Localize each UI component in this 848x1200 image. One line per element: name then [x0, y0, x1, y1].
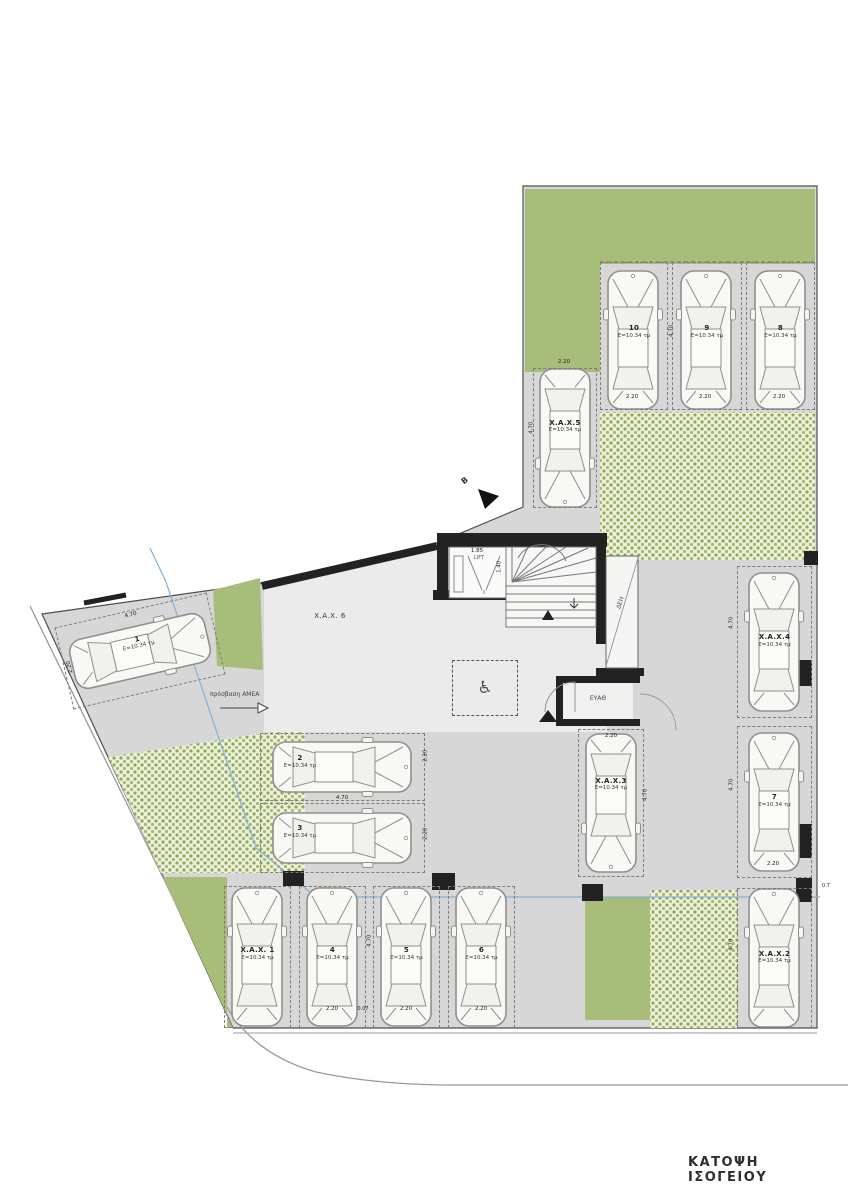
- dimension-label: 0.7: [812, 884, 840, 889]
- parking-space-xax1: X.A.X. 1 E=10.34 τμ: [224, 886, 291, 1028]
- space-area: E=10.34 τμ: [300, 955, 365, 962]
- stairs: [506, 545, 596, 627]
- access-label: πρόσβαση ΑΜΕΑ: [210, 692, 280, 698]
- dimension-label: 4.70: [367, 927, 373, 955]
- dimension-label: 4.70: [729, 609, 735, 637]
- space-number: 8: [747, 324, 814, 333]
- parking-space-xax5: X.A.X.5 E=10.34 τμ: [533, 368, 597, 508]
- dimension-label: 2.20: [765, 395, 793, 401]
- lift-label: LIFT: [466, 556, 492, 561]
- dimension-label: 4.70: [643, 781, 649, 809]
- dimension-label: 1.40: [497, 553, 503, 581]
- parking-space-8: 8 E=10.34 τμ: [746, 262, 815, 410]
- space-number: X.A.X.3: [579, 777, 643, 786]
- dimension-label: 2.20: [467, 1007, 495, 1013]
- garden-south-center: [585, 897, 650, 1020]
- dimension-label: 2.20: [318, 1007, 346, 1013]
- dimension-label: 2.20: [423, 742, 429, 770]
- paver-area-south: [650, 890, 738, 1028]
- parking-space-2: 2 E=10.34 τμ: [260, 733, 425, 801]
- page-title: ΚΑΤΟΨΗ ΙΣΟΓΕΙΟΥ: [688, 1155, 838, 1185]
- parking-space-xax3: X.A.X.3 E=10.34 τμ: [578, 729, 644, 877]
- dimension-label: 4.70: [117, 610, 146, 622]
- dimension-label: 4.70: [669, 317, 675, 345]
- parking-space-7: 7 E=10.34 τμ: [737, 726, 812, 878]
- space-number: 1: [61, 618, 213, 661]
- space-number: 6: [449, 946, 514, 955]
- space-area: E=10.34 τμ: [225, 955, 290, 962]
- space-area: E=10.34 τμ: [601, 333, 667, 340]
- dimension-label: 2.20: [392, 1007, 420, 1013]
- space-number: X.A.X.5: [534, 419, 596, 428]
- parking-space-xax4: X.A.X.4 E=10.34 τμ: [737, 566, 812, 718]
- wheelchair-icon: ♿: [477, 678, 492, 698]
- space-area: E=10.34 τμ: [269, 763, 331, 770]
- space-number: 5: [374, 946, 439, 955]
- space-area: E=10.34 τμ: [269, 833, 331, 840]
- hall-floor: [264, 545, 437, 732]
- parking-space-3: 3 E=10.34 τμ: [260, 803, 425, 873]
- dimension-label: 2.20: [423, 820, 429, 848]
- space-area: E=10.34 τμ: [738, 642, 811, 649]
- section-b-arrow: [478, 489, 499, 509]
- dimension-label: 4.70: [328, 796, 356, 802]
- space-number: 10: [601, 324, 667, 333]
- space-area: E=10.34 τμ: [738, 802, 811, 809]
- dimension-label: 4.70: [529, 414, 535, 442]
- space-area: E=10.34 τμ: [449, 955, 514, 962]
- parking-space-xax2: X.A.X.2 E=10.34 τμ: [737, 888, 812, 1028]
- space-number: X.A.X.2: [738, 950, 811, 959]
- garden-top-left-strip: [525, 262, 600, 372]
- dimension-label: 2.20: [691, 395, 719, 401]
- space-number: 3: [269, 824, 331, 833]
- utility-room-deh: [606, 556, 638, 668]
- space-area: E=10.34 τμ: [747, 333, 814, 340]
- paver-area-east: [600, 412, 815, 560]
- space-number: X.A.X.4: [738, 633, 811, 642]
- space-area: E=10.34 τμ: [738, 958, 811, 965]
- eyath-label: ΕΥΑΘ: [565, 696, 631, 702]
- space-area: E=10.34 τμ: [579, 785, 643, 792]
- hall-label: X.A.X. 6: [300, 613, 360, 620]
- dimension-label: 2.20: [550, 360, 578, 366]
- dimension-label: 4.70: [729, 771, 735, 799]
- space-number: 4: [300, 946, 365, 955]
- dimension-label: 2.20: [597, 734, 625, 740]
- space-number: 7: [738, 793, 811, 802]
- dimension-label: 1.85: [463, 549, 491, 555]
- space-area: E=10.34 τμ: [374, 955, 439, 962]
- space-number: X.A.X. 1: [225, 946, 290, 955]
- space-number: 2: [269, 754, 331, 763]
- space-area: E=10.34 τμ: [673, 333, 741, 340]
- garden-top: [525, 189, 815, 264]
- space-number: 9: [673, 324, 741, 333]
- parking-space-9: 9 E=10.34 τμ: [672, 262, 742, 410]
- dimension-label: 0.07: [355, 1007, 371, 1012]
- parking-space-10: 10 E=10.34 τμ: [600, 262, 668, 410]
- dimension-label: 4.70: [729, 931, 735, 959]
- floor-plan: 10 E=10.34 τμ 9 E=10.34 τμ 8 E=10.34 τμ …: [0, 0, 848, 1200]
- disabled-parking-spot: ♿: [452, 660, 518, 716]
- dimension-label: 2.20: [759, 862, 787, 868]
- space-area: E=10.34 τμ: [534, 427, 596, 434]
- dimension-label: 2.20: [618, 395, 646, 401]
